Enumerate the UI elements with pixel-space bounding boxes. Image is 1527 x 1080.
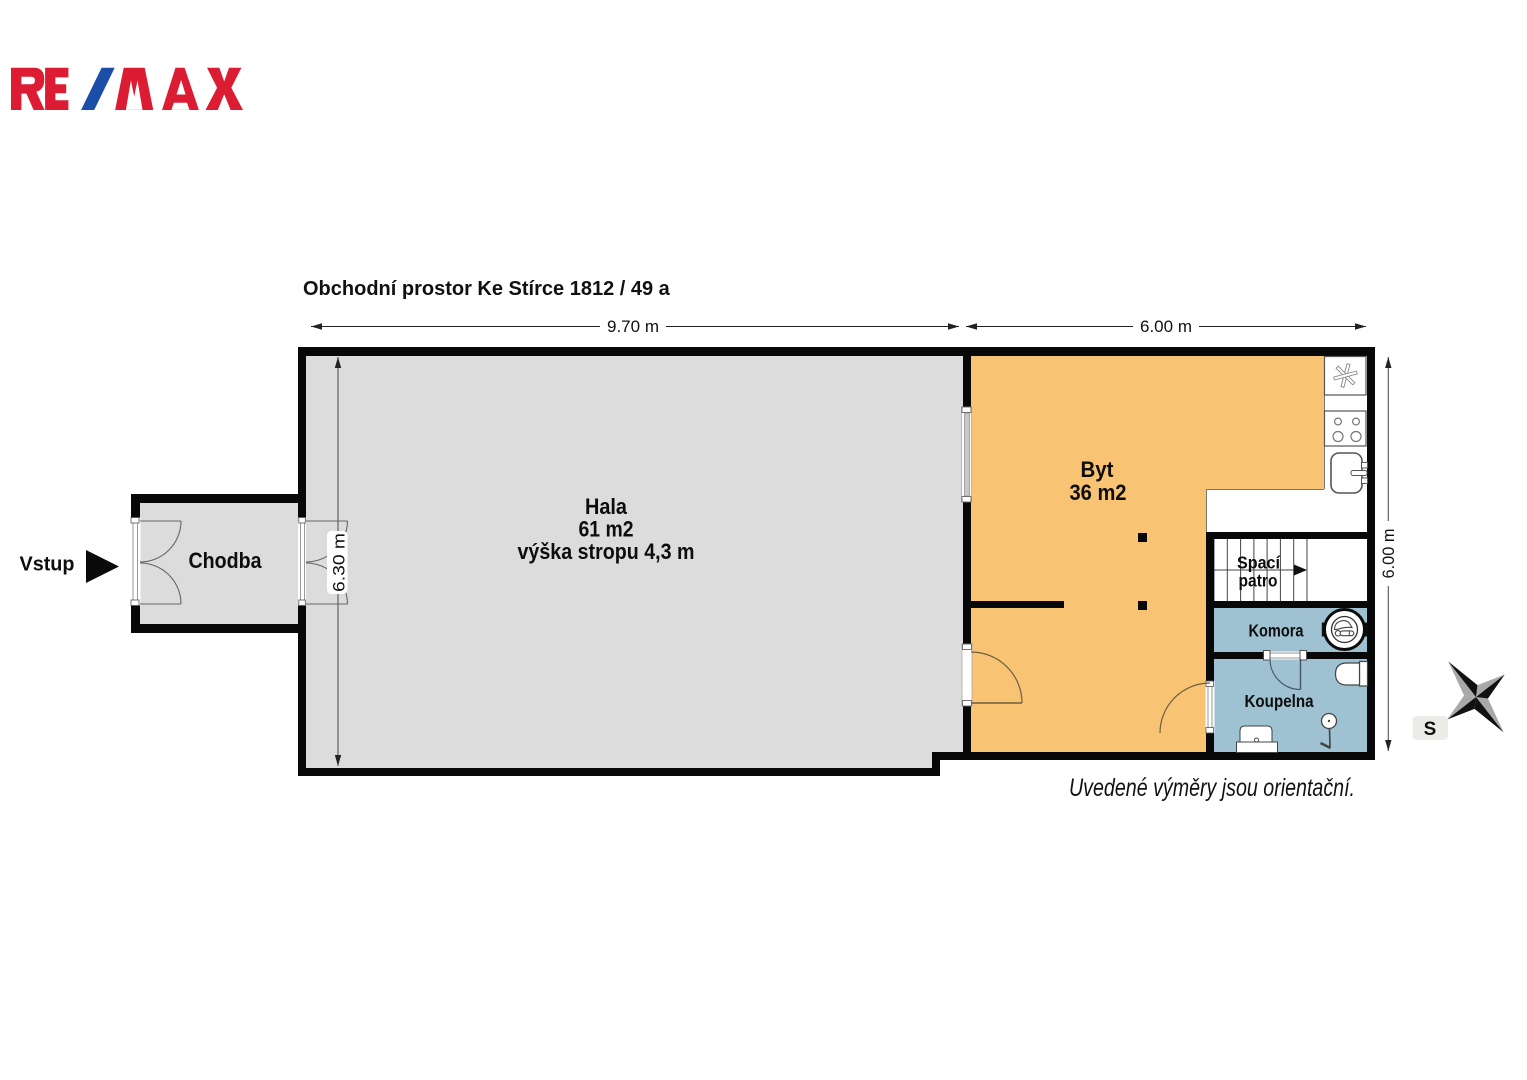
svg-text:61 m2: 61 m2 <box>579 517 634 542</box>
svg-text:9.70 m: 9.70 m <box>607 317 659 336</box>
svg-text:Obchodní prostor Ke Stírce 181: Obchodní prostor Ke Stírce 1812 / 49 a <box>303 278 671 300</box>
svg-text:Byt: Byt <box>1081 457 1114 482</box>
svg-text:36 m2: 36 m2 <box>1070 480 1127 505</box>
svg-text:6.30 m: 6.30 m <box>330 533 349 592</box>
svg-text:Vstup: Vstup <box>20 554 75 576</box>
svg-text:Hala: Hala <box>585 494 628 519</box>
svg-text:S: S <box>1424 719 1437 740</box>
svg-text:Koupelna: Koupelna <box>1245 691 1314 711</box>
svg-text:6.00 m: 6.00 m <box>1140 317 1192 336</box>
svg-text:6.00 m: 6.00 m <box>1379 529 1398 579</box>
svg-text:Spací: Spací <box>1237 553 1281 573</box>
svg-text:Chodba: Chodba <box>189 548 263 573</box>
svg-text:Uvedené výměry jsou orientační: Uvedené výměry jsou orientační. <box>1069 774 1355 802</box>
svg-text:výška stropu 4,3 m: výška stropu 4,3 m <box>518 539 695 564</box>
svg-text:patro: patro <box>1239 571 1278 591</box>
svg-text:Komora: Komora <box>1249 621 1304 641</box>
